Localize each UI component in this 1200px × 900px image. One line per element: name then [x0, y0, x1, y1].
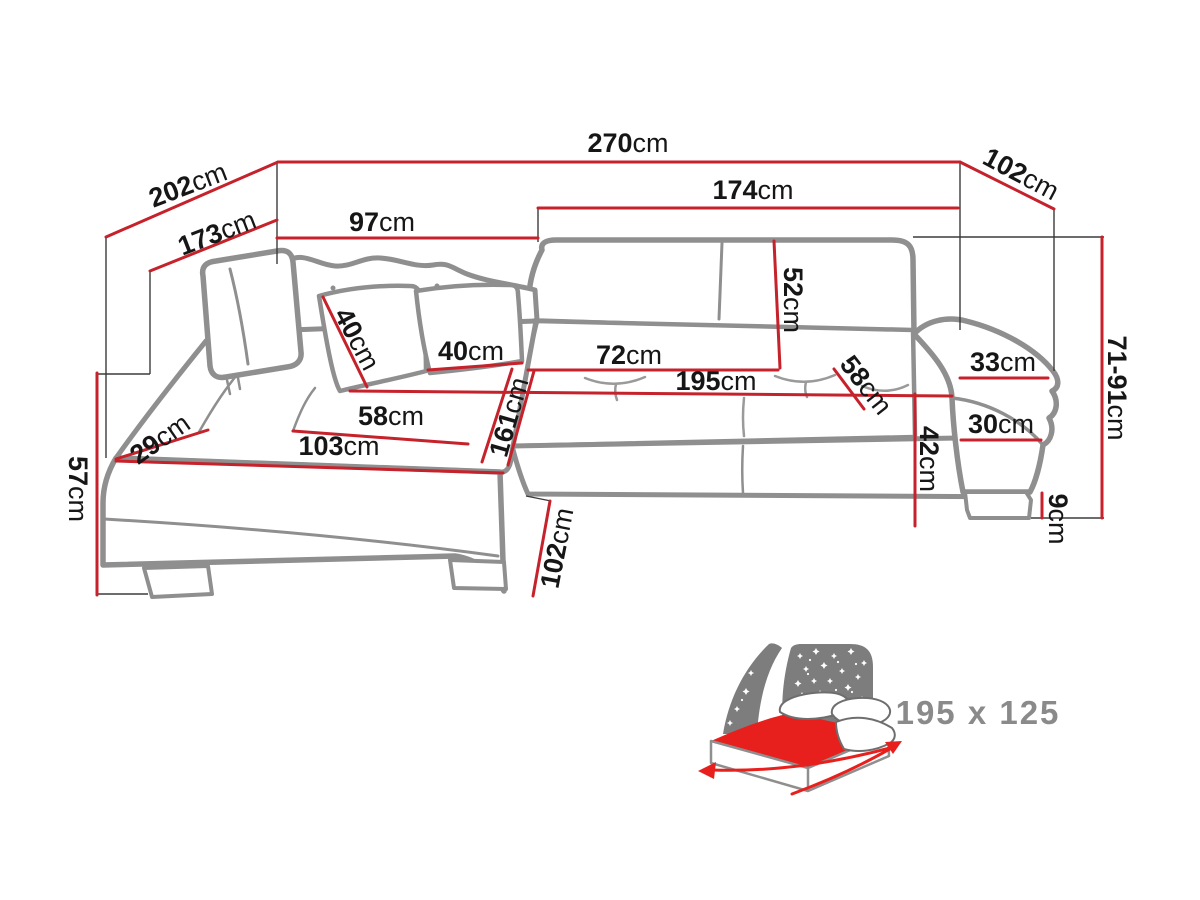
dim-label-9: 9cm [1043, 493, 1073, 544]
dim-label-30: 30cm [968, 409, 1034, 439]
dim-label-97: 97cm [349, 207, 415, 237]
dim-label-195: 195cm [675, 366, 756, 396]
dim-label-40-right: 40cm [438, 336, 504, 366]
front-crease [742, 446, 743, 493]
dim-label-71-91: 71-91cm [1102, 335, 1132, 440]
dim-label-58-left: 58cm [358, 401, 424, 431]
dim-label-102-bottom: 102cm [535, 505, 580, 590]
headrest [203, 250, 301, 377]
dim-label-57: 57cm [63, 456, 93, 522]
dim-label-270: 270cm [587, 128, 668, 158]
dim-label-103: 103cm [298, 431, 379, 461]
sofa-front-base [512, 438, 1028, 497]
dim-label-102-right: 102cm [978, 142, 1064, 207]
bed-size-label: 195 x 125 [896, 694, 1061, 731]
sofa-dimension-diagram-page: 270cm 202cm 173cm 97cm 174cm 102cm 71-91… [0, 0, 1200, 900]
dim-label-174: 174cm [712, 175, 793, 205]
dim-label-202: 202cm [145, 156, 231, 213]
dim-label-173: 173cm [174, 204, 260, 261]
dim-label-72: 72cm [596, 340, 662, 370]
arrow-head-left-icon [698, 762, 716, 779]
sofa-leg-right [965, 492, 1031, 518]
bed-blanket-icon [836, 718, 895, 751]
bolster-button [331, 286, 336, 291]
sleeping-area-icon: 195 x 125 [698, 643, 1060, 794]
dim-label-33: 33cm [970, 347, 1036, 377]
dim-label-52: 52cm [778, 267, 808, 333]
chaise-leg-right [450, 560, 506, 589]
chaise-leg-left [144, 566, 212, 597]
dim-label-42: 42cm [914, 426, 944, 492]
sofa-dimension-diagram: 270cm 202cm 173cm 97cm 174cm 102cm 71-91… [0, 0, 1200, 900]
